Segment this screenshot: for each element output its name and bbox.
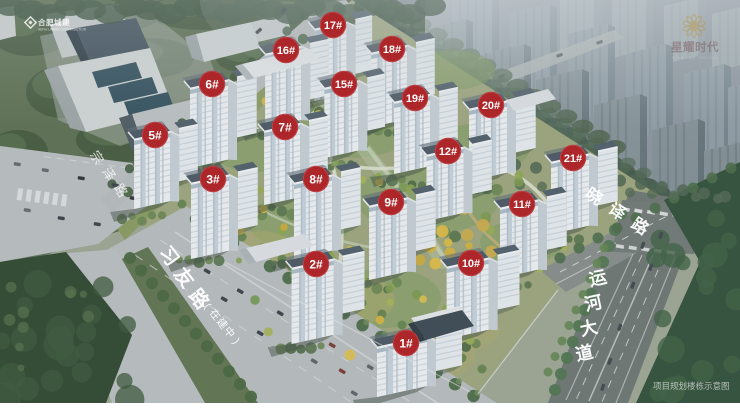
svg-text:20#: 20# bbox=[482, 100, 500, 112]
svg-text:11#: 11# bbox=[513, 199, 531, 211]
svg-text:3#: 3# bbox=[206, 172, 220, 186]
svg-text:9#: 9# bbox=[384, 195, 398, 209]
svg-text:1#: 1# bbox=[399, 336, 413, 350]
svg-text:XING YAO SHI DAI: XING YAO SHI DAI bbox=[671, 56, 718, 60]
svg-text:项目规划楼栋示意图: 项目规划楼栋示意图 bbox=[653, 381, 730, 391]
svg-text:19#: 19# bbox=[406, 93, 424, 105]
svg-text:10#: 10# bbox=[462, 258, 480, 270]
svg-text:2#: 2# bbox=[309, 257, 323, 271]
svg-text:21#: 21# bbox=[564, 153, 582, 165]
svg-text:星耀时代: 星耀时代 bbox=[671, 40, 719, 54]
svg-text:7#: 7# bbox=[278, 120, 292, 134]
svg-text:18#: 18# bbox=[383, 44, 401, 56]
svg-text:8#: 8# bbox=[309, 172, 323, 186]
svg-text:5#: 5# bbox=[148, 128, 162, 142]
svg-text:16#: 16# bbox=[277, 45, 295, 57]
svg-text:15#: 15# bbox=[335, 79, 353, 91]
svg-text:合肥城建: 合肥城建 bbox=[38, 17, 70, 27]
svg-text:17#: 17# bbox=[324, 20, 342, 32]
svg-text:HEFEI URBAN CONSTRUCTION: HEFEI URBAN CONSTRUCTION bbox=[38, 28, 87, 32]
svg-text:12#: 12# bbox=[439, 146, 457, 158]
svg-text:6#: 6# bbox=[205, 77, 219, 91]
